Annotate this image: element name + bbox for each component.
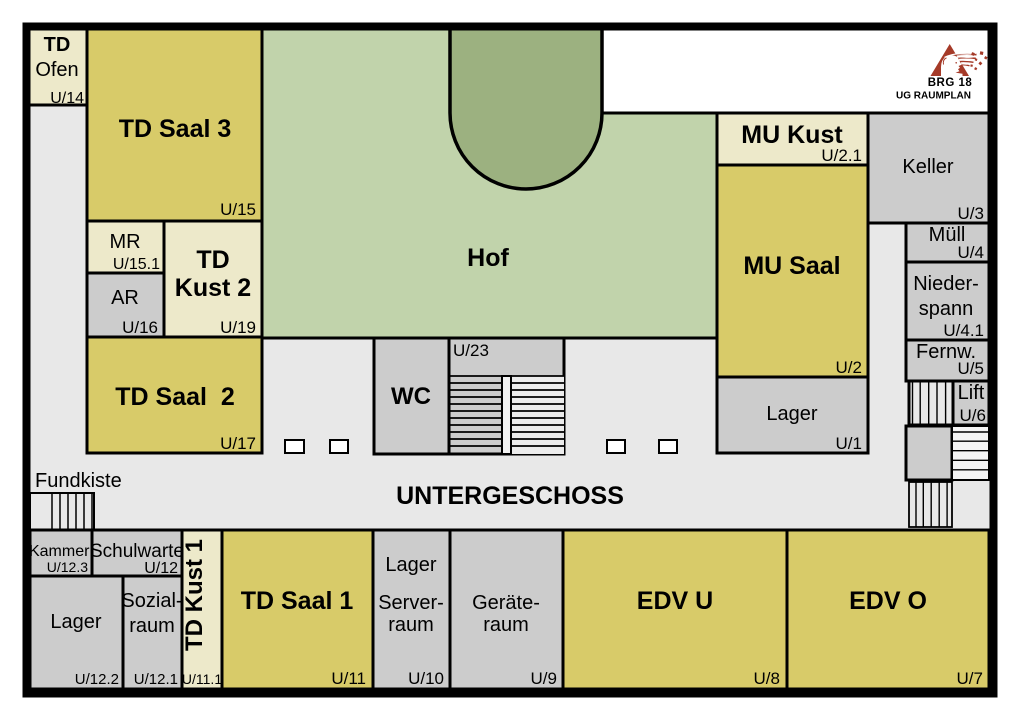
svg-text:TD: TD <box>44 34 71 56</box>
svg-text:U/16: U/16 <box>122 318 158 337</box>
svg-text:U/19: U/19 <box>220 318 256 337</box>
svg-text:Lift: Lift <box>958 382 985 404</box>
svg-text:U/2.1: U/2.1 <box>821 146 862 165</box>
svg-text:EDV O: EDV O <box>849 587 927 615</box>
svg-text:U/2: U/2 <box>836 358 862 377</box>
svg-text:U/3: U/3 <box>958 204 984 223</box>
svg-text:Kammerl: Kammerl <box>29 543 93 560</box>
svg-text:spann: spann <box>919 298 974 320</box>
svg-text:Lager: Lager <box>50 611 101 633</box>
svg-text:Geräte-: Geräte- <box>472 592 540 614</box>
svg-text:Nieder-: Nieder- <box>913 273 979 295</box>
svg-text:U/7: U/7 <box>957 669 983 688</box>
svg-text:EDV U: EDV U <box>637 587 713 615</box>
svg-text:U/17: U/17 <box>220 434 256 453</box>
svg-text:Kust 2: Kust 2 <box>175 274 251 302</box>
svg-text:Schulwarte: Schulwarte <box>90 541 184 562</box>
svg-text:TD: TD <box>196 246 229 274</box>
svg-text:Lager: Lager <box>766 403 817 425</box>
svg-text:U/4.1: U/4.1 <box>943 321 984 340</box>
svg-text:U/11: U/11 <box>331 669 366 688</box>
svg-text:TD Kust 1: TD Kust 1 <box>181 539 208 651</box>
svg-text:U/10: U/10 <box>408 669 444 688</box>
svg-text:U/12: U/12 <box>144 560 178 577</box>
svg-text:UG RAUMPLAN: UG RAUMPLAN <box>896 91 971 102</box>
svg-text:U/11.1: U/11.1 <box>182 671 222 687</box>
svg-text:BRG 18: BRG 18 <box>928 77 973 89</box>
svg-text:Lager: Lager <box>385 554 436 576</box>
svg-text:U/12.2: U/12.2 <box>75 671 119 688</box>
svg-text:U/6: U/6 <box>960 406 986 425</box>
svg-text:raum: raum <box>388 614 434 636</box>
svg-text:UNTERGESCHOSS: UNTERGESCHOSS <box>396 482 624 510</box>
svg-text:Hof: Hof <box>467 244 509 272</box>
svg-text:raum: raum <box>483 614 529 636</box>
svg-text:Ofen: Ofen <box>35 59 78 81</box>
svg-text:U/12.3: U/12.3 <box>47 559 88 575</box>
svg-text:Server-: Server- <box>378 592 444 614</box>
svg-text:U/5: U/5 <box>958 359 984 378</box>
svg-text:U/1: U/1 <box>836 434 862 453</box>
svg-text:U/9: U/9 <box>531 669 557 688</box>
svg-text:U/23: U/23 <box>453 341 489 360</box>
svg-text:TD Saal 2: TD Saal 2 <box>115 383 235 411</box>
svg-text:U/14: U/14 <box>50 90 84 107</box>
svg-text:MU Kust: MU Kust <box>741 121 843 149</box>
svg-text:AR: AR <box>111 287 139 309</box>
svg-text:raum: raum <box>129 615 175 637</box>
svg-text:WC: WC <box>391 383 431 410</box>
svg-text:Keller: Keller <box>902 156 953 178</box>
svg-text:TD Saal 1: TD Saal 1 <box>241 587 354 615</box>
svg-text:Sozial-: Sozial- <box>121 590 182 612</box>
svg-text:MU Saal: MU Saal <box>743 252 840 280</box>
svg-text:MR: MR <box>109 231 140 253</box>
svg-text:U/12.1: U/12.1 <box>134 671 178 688</box>
svg-text:U/4: U/4 <box>958 243 984 262</box>
svg-text:Fundkiste: Fundkiste <box>35 470 122 492</box>
svg-text:TD Saal 3: TD Saal 3 <box>119 115 232 143</box>
svg-text:U/15.1: U/15.1 <box>113 256 160 273</box>
svg-text:U/15: U/15 <box>220 200 256 219</box>
svg-text:U/8: U/8 <box>754 669 780 688</box>
